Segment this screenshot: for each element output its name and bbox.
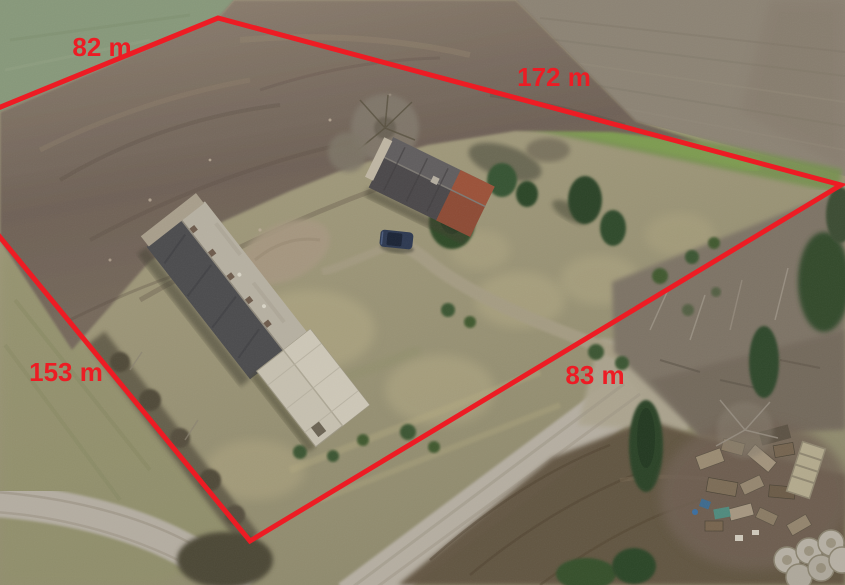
measurement-label-82m: 82 m bbox=[72, 32, 131, 62]
aerial-photo: 82 m 172 m 153 m 83 m bbox=[0, 0, 845, 585]
measurement-label-172m: 172 m bbox=[517, 62, 591, 92]
measurement-label-153m: 153 m bbox=[29, 357, 103, 387]
measurement-label-83m: 83 m bbox=[565, 360, 624, 390]
photo-grain bbox=[0, 0, 845, 585]
